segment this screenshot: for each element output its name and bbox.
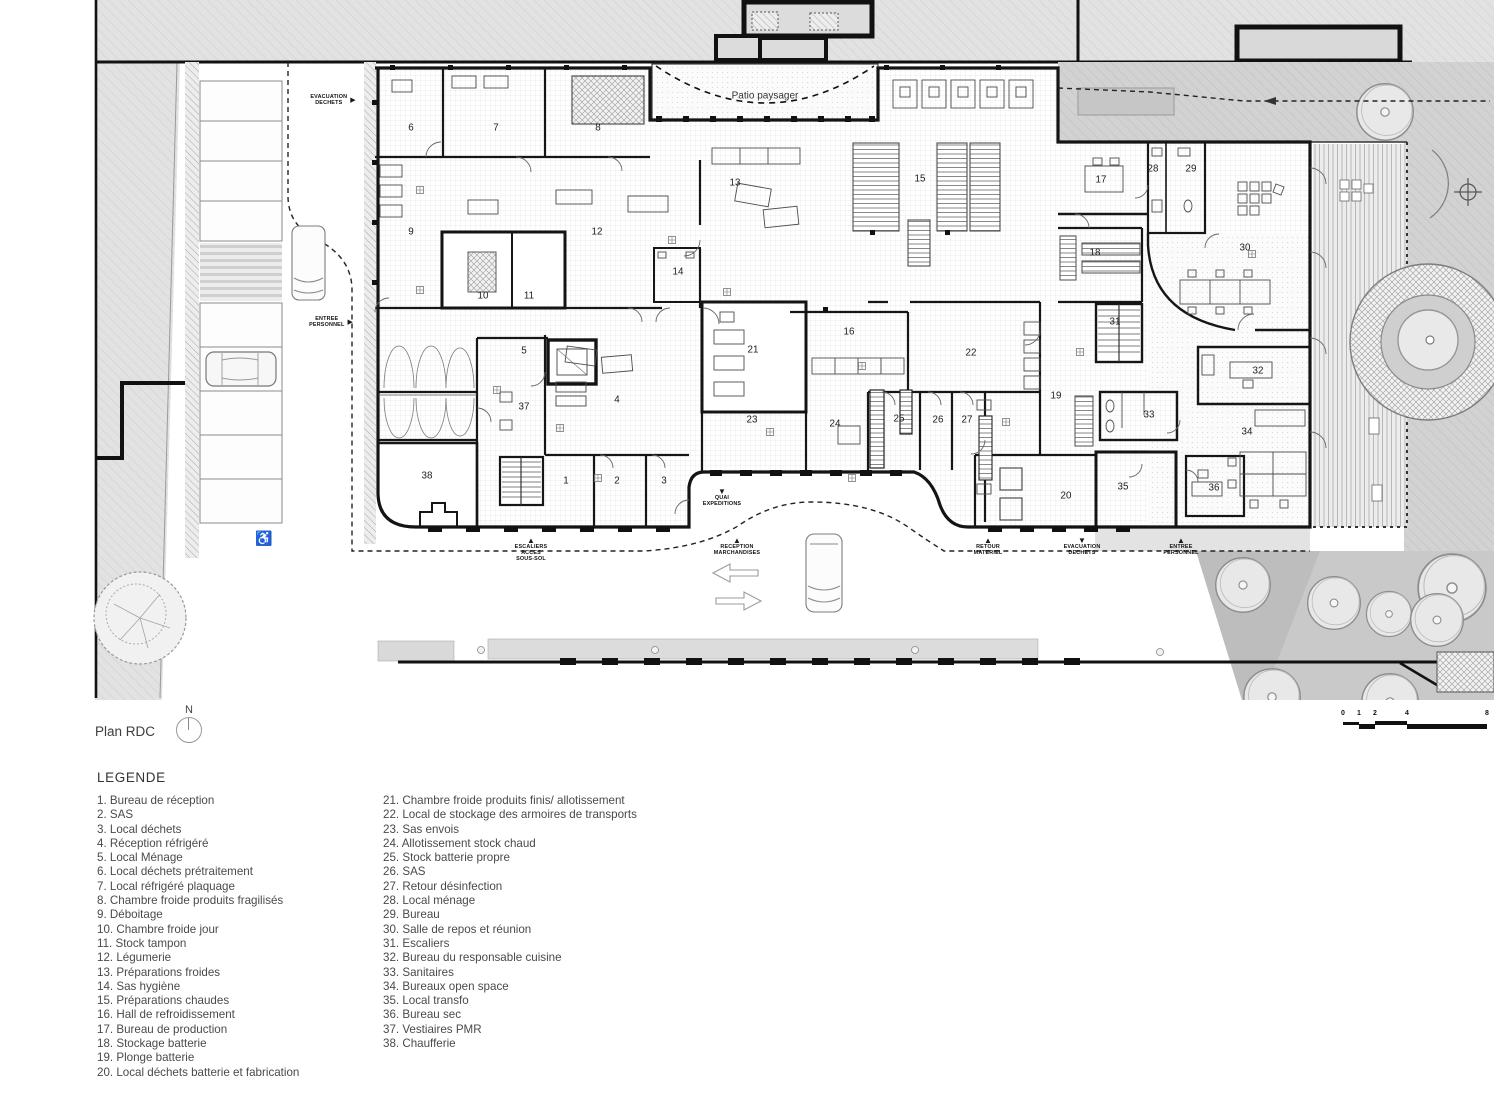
- room-number: 38: [422, 471, 433, 482]
- legend-item: 2. SAS: [97, 808, 377, 822]
- room-number: 35: [1118, 482, 1129, 493]
- room-number: 4: [614, 395, 619, 406]
- flow-label-text: MATERIEL: [974, 550, 1003, 556]
- room-number: 3: [661, 476, 666, 487]
- van-icon: [806, 534, 842, 612]
- room-number: 2: [614, 476, 619, 487]
- north-label: N: [174, 704, 204, 716]
- north-compass-icon: N: [174, 704, 204, 743]
- page-title: Plan RDC: [95, 724, 155, 739]
- flow-label: ▲RECEPTIONMARCHANDISES: [714, 537, 760, 556]
- room-number: 17: [1096, 175, 1107, 186]
- flow-label-text: DECHETS: [310, 100, 347, 106]
- parking-stall: [200, 161, 282, 201]
- patio-label: Patio paysager: [732, 91, 799, 102]
- tree-icon: [1308, 577, 1361, 630]
- tree-icon: [1411, 594, 1464, 647]
- scale-segment: [1359, 724, 1375, 729]
- wheelchair-icon: ♿: [255, 530, 272, 547]
- legend-item: 38. Chaufferie: [383, 1037, 713, 1051]
- scale-bar: 01248: [1330, 708, 1494, 742]
- parking-stall: [200, 479, 282, 523]
- legend-item: 7. Local réfrigéré plaquage: [97, 880, 377, 894]
- flow-arrow-icon: ▶: [347, 319, 352, 326]
- room-number: 5: [521, 346, 526, 357]
- room-number: 32: [1253, 366, 1264, 377]
- flow-label-text: DECHETS: [1064, 550, 1101, 556]
- crosswalk: [200, 243, 282, 301]
- legend-title: LEGENDE: [97, 770, 997, 785]
- flow-label-text: PERSONNEL: [309, 322, 344, 328]
- scale-segment: [1375, 721, 1407, 725]
- legend-column-2: 21. Chambre froide produits finis/ allot…: [383, 794, 713, 1051]
- parking-stall: [200, 201, 282, 241]
- legend-item: 28. Local ménage: [383, 894, 713, 908]
- floor-plan-page: ♿: [0, 0, 1494, 1100]
- legend-item: 12. Légumerie: [97, 951, 377, 965]
- legend-item: 20. Local déchets batterie et fabricatio…: [97, 1066, 377, 1080]
- room-number: 16: [844, 327, 855, 338]
- scale-segment: [1407, 724, 1487, 729]
- room-number: 1: [563, 476, 568, 487]
- legend-item: 18. Stockage batterie: [97, 1037, 377, 1051]
- tree-icon: [94, 572, 186, 664]
- room-number: 37: [519, 402, 530, 413]
- legend-item: 14. Sas hygiène: [97, 980, 377, 994]
- flow-arrow-icon: ▲: [733, 537, 741, 544]
- flow-label: ▲ENTREEPERSONNEL: [1163, 537, 1198, 556]
- scale-tick: 1: [1357, 710, 1361, 717]
- room-number: 7: [493, 123, 498, 134]
- room-number: 36: [1209, 483, 1220, 494]
- tree-icon: [1366, 591, 1411, 636]
- room-number: 24: [830, 419, 841, 430]
- legend-item: 13. Préparations froides: [97, 966, 377, 980]
- room-number: 33: [1144, 410, 1155, 421]
- legend-item: 3. Local déchets: [97, 823, 377, 837]
- legend-item: 1. Bureau de réception: [97, 794, 377, 808]
- legend-item: 23. Sas envois: [383, 823, 713, 837]
- flow-label-text: EXPEDITIONS: [703, 501, 741, 507]
- legend-item: 27. Retour désinfection: [383, 880, 713, 894]
- legend-item: 31. Escaliers: [383, 937, 713, 951]
- flow-label: ▼EVACUATIONDECHETS: [1064, 537, 1101, 556]
- legend-item: 26. SAS: [383, 865, 713, 879]
- parking-stall: [200, 303, 282, 347]
- room-number: 28: [1148, 164, 1159, 175]
- legend-item: 5. Local Ménage: [97, 851, 377, 865]
- scale-tick: 0: [1341, 710, 1345, 717]
- legend-item: 15. Préparations chaudes: [97, 994, 377, 1008]
- legend-item: 8. Chambre froide produits fragilisés: [97, 894, 377, 908]
- room-number: 22: [966, 348, 977, 359]
- parking-layer: ♿: [200, 81, 282, 547]
- van-icon: [292, 226, 325, 300]
- room-number: 31: [1110, 317, 1121, 328]
- room-number: 9: [408, 227, 413, 238]
- flow-arrow-icon: ▲: [1177, 537, 1185, 544]
- flow-label: EVACUATIONDECHETS▶: [310, 94, 355, 106]
- legend-item: 34. Bureaux open space: [383, 980, 713, 994]
- room-number: 6: [408, 123, 413, 134]
- room-number: 23: [747, 415, 758, 426]
- flow-arrow-icon: ▼: [1078, 537, 1086, 544]
- parking-stall: [200, 81, 282, 121]
- legend-item: 17. Bureau de production: [97, 1023, 377, 1037]
- legend-item: 33. Sanitaires: [383, 966, 713, 980]
- flow-label: ▲ESCALIERSACCESSOUS-SOL: [515, 537, 548, 562]
- legend-item: 4. Réception réfrigéré: [97, 837, 377, 851]
- room-number: 18: [1090, 248, 1101, 259]
- legend: LEGENDE 1. Bureau de réception2. SAS3. L…: [97, 770, 997, 794]
- room-number: 15: [915, 174, 926, 185]
- room-number: 13: [730, 178, 741, 189]
- car-icon: [206, 352, 276, 386]
- flow-label-text: MARCHANDISES: [714, 550, 760, 556]
- scale-tick: 8: [1485, 710, 1489, 717]
- room-number: 8: [595, 123, 600, 134]
- legend-item: 9. Déboitage: [97, 908, 377, 922]
- flow-label: ▼QUAIEXPEDITIONS: [703, 488, 741, 507]
- flow-arrow-icon: ▼: [718, 488, 726, 495]
- room-number: 29: [1186, 164, 1197, 175]
- legend-item: 21. Chambre froide produits finis/ allot…: [383, 794, 713, 808]
- room-number: 10: [478, 291, 489, 302]
- legend-item: 36. Bureau sec: [383, 1008, 713, 1022]
- room-number: 21: [748, 345, 759, 356]
- scale-tick: 4: [1405, 710, 1409, 717]
- room-number: 26: [933, 415, 944, 426]
- legend-item: 32. Bureau du responsable cuisine: [383, 951, 713, 965]
- tree-icon: [1357, 84, 1413, 140]
- legend-item: 30. Salle de repos et réunion: [383, 923, 713, 937]
- flow-label: ▲RETOURMATERIEL: [974, 537, 1003, 556]
- legend-item: 19. Plonge batterie: [97, 1051, 377, 1065]
- legend-item: 22. Local de stockage des armoires de tr…: [383, 808, 713, 822]
- neighbor-building-icon: [1237, 27, 1400, 61]
- legend-item: 6. Local déchets prétraitement: [97, 865, 377, 879]
- legend-item: 16. Hall de refroidissement: [97, 1008, 377, 1022]
- legend-item: 10. Chambre froide jour: [97, 923, 377, 937]
- circular-plaza: [1350, 264, 1494, 420]
- scale-segment: [1343, 722, 1359, 725]
- flow-label-text: PERSONNEL: [1163, 550, 1198, 556]
- tree-icon: [1216, 558, 1271, 613]
- legend-item: 24. Allotissement stock chaud: [383, 837, 713, 851]
- room-number: 14: [673, 267, 684, 278]
- floor-plan: ♿: [0, 0, 1494, 700]
- parking-stall: [200, 435, 282, 479]
- flow-arrow-icon: ▲: [527, 537, 535, 544]
- flow-label: ENTREEPERSONNEL▶: [309, 316, 353, 328]
- legend-item: 25. Stock batterie propre: [383, 851, 713, 865]
- legend-column-1: 1. Bureau de réception2. SAS3. Local déc…: [97, 794, 377, 1080]
- room-number: 34: [1242, 427, 1253, 438]
- legend-item: 29. Bureau: [383, 908, 713, 922]
- direction-arrow-left-icon: [713, 564, 758, 582]
- room-number: 11: [524, 291, 534, 302]
- legend-item: 11. Stock tampon: [97, 937, 377, 951]
- room-number: 19: [1051, 391, 1062, 402]
- room-number: 25: [894, 414, 905, 425]
- flow-arrow-icon: ▶: [350, 97, 355, 104]
- room-number: 27: [962, 415, 973, 426]
- legend-item: 37. Vestiaires PMR: [383, 1023, 713, 1037]
- room-number: 30: [1240, 243, 1251, 254]
- room-number: 20: [1061, 491, 1072, 502]
- parking-stall: [200, 121, 282, 161]
- flow-label-text: SOUS-SOL: [515, 556, 548, 562]
- direction-arrow-right-icon: [716, 592, 761, 610]
- room-number: 12: [592, 227, 603, 238]
- scale-tick: 2: [1373, 710, 1377, 717]
- flow-arrow-icon: ▲: [984, 537, 992, 544]
- legend-item: 35. Local transfo: [383, 994, 713, 1008]
- parking-stall: [200, 391, 282, 435]
